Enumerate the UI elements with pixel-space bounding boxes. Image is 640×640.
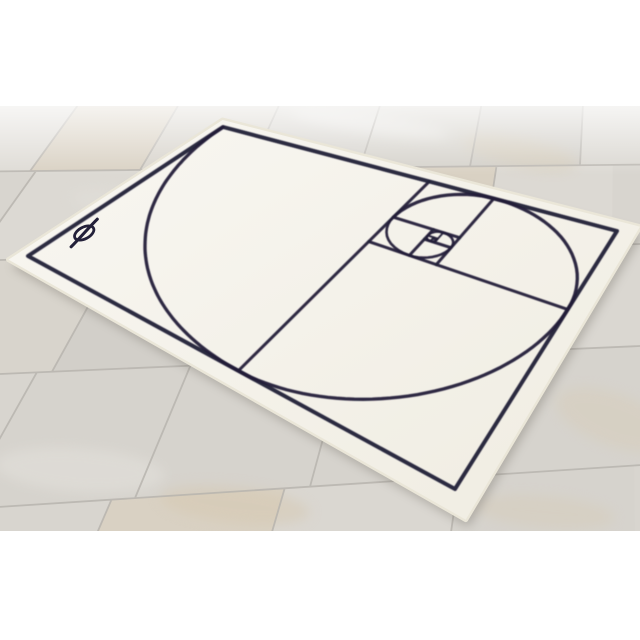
photo (0, 0, 640, 640)
white-matte-top (0, 0, 640, 106)
scene-svg (0, 0, 640, 640)
white-matte-bottom (0, 531, 640, 640)
